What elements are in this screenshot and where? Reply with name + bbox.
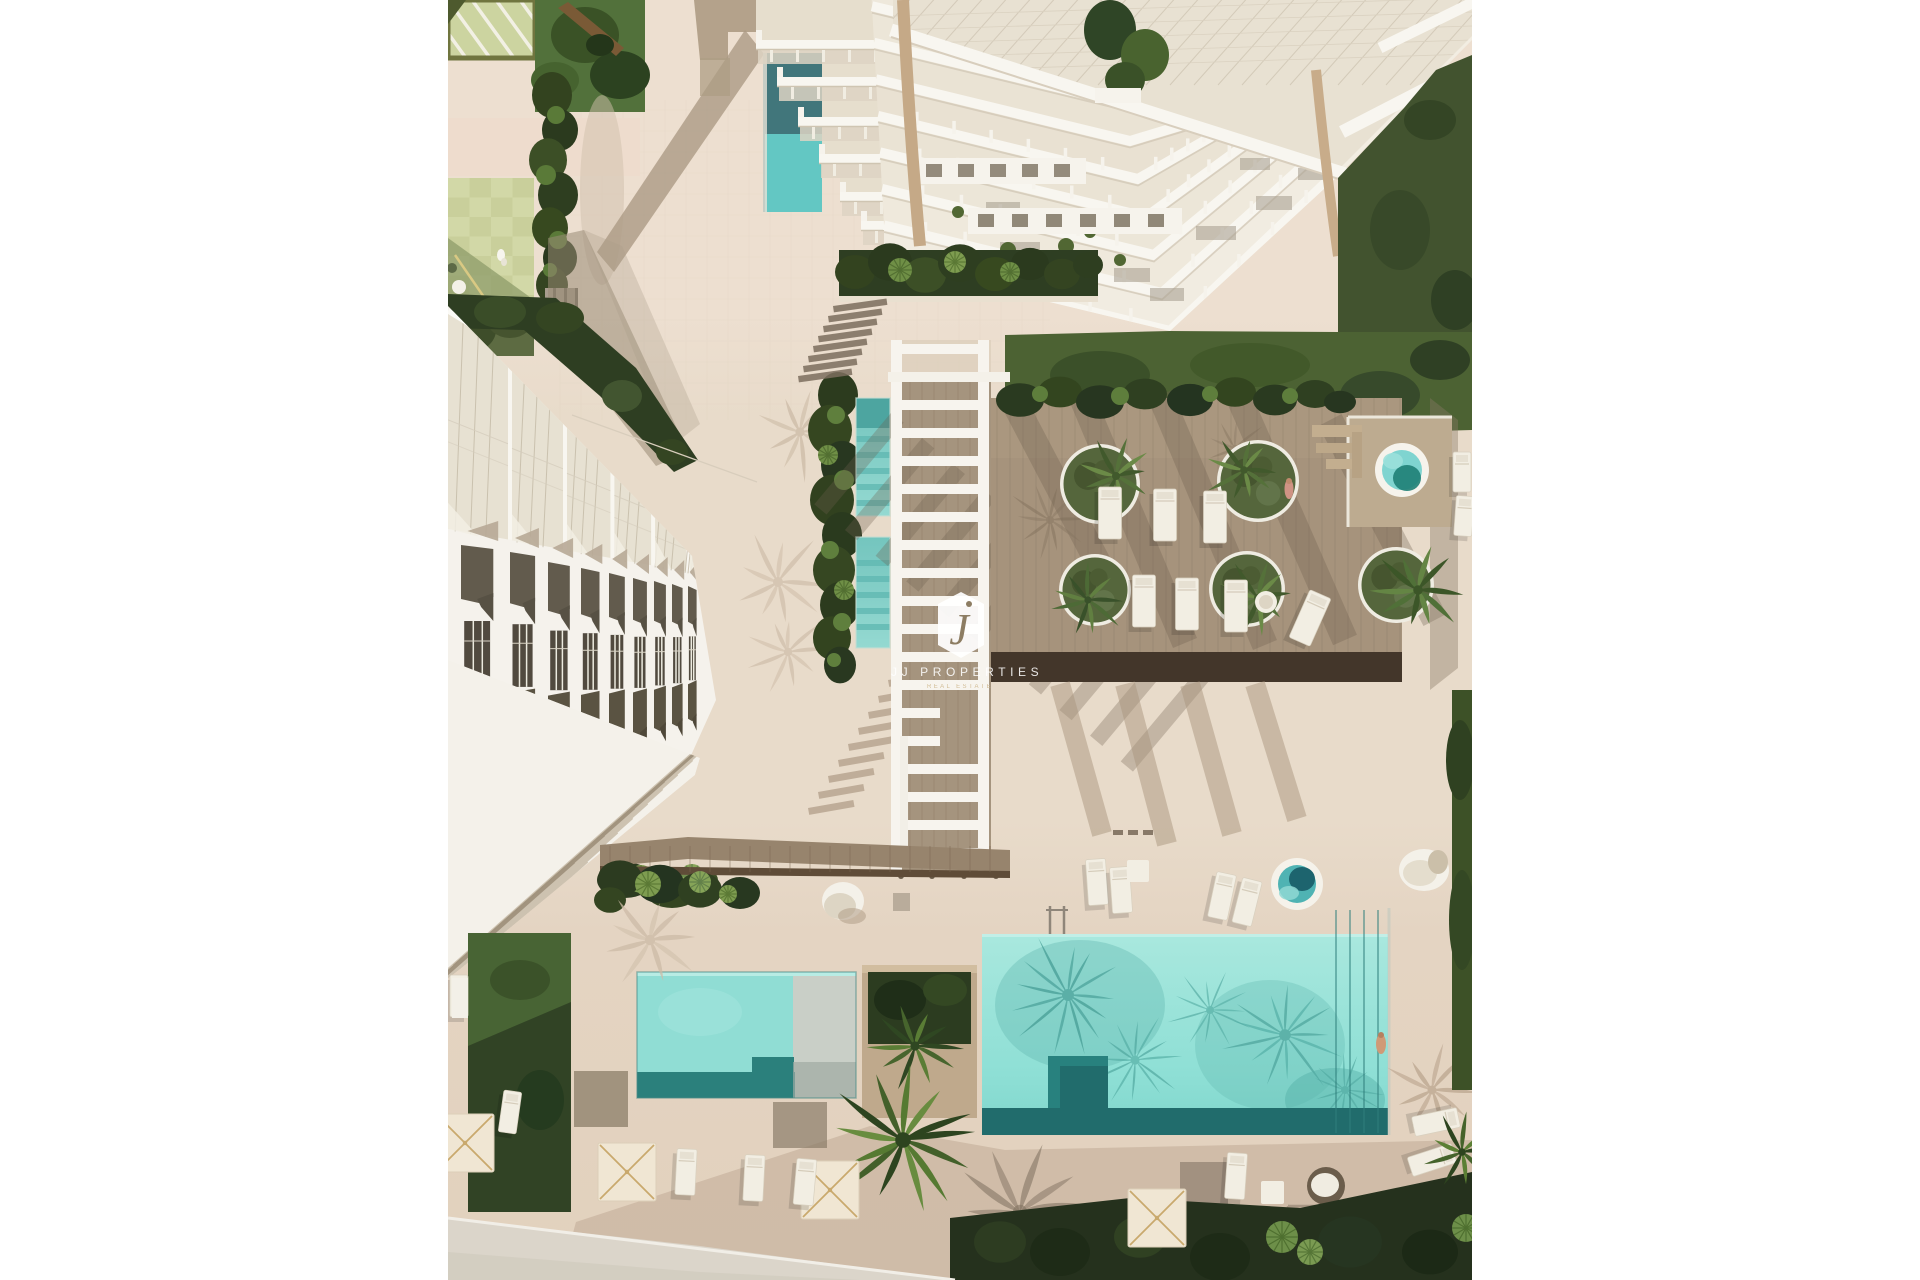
svg-text:J: J xyxy=(949,605,971,654)
svg-text:REAL ESTATE: REAL ESTATE xyxy=(927,684,993,690)
svg-text:JJ PROPERTIES: JJ PROPERTIES xyxy=(891,665,1043,679)
